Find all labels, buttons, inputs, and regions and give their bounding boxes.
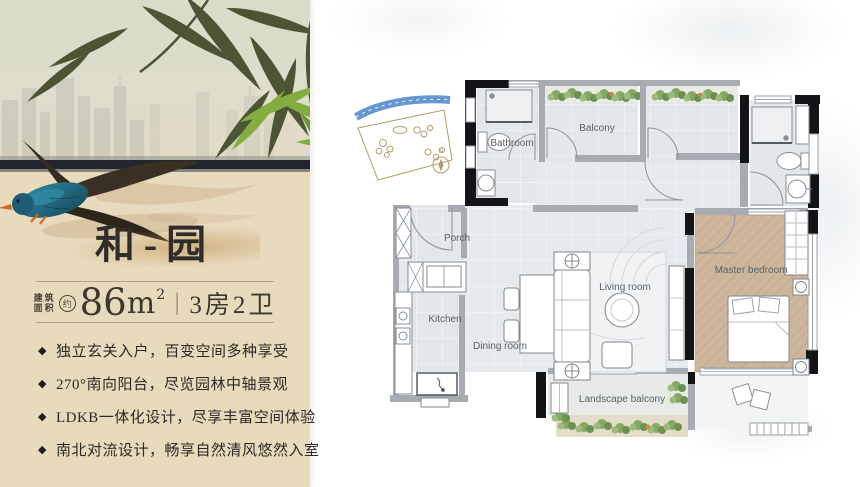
approx-badge: 约: [59, 295, 76, 312]
sink-icon: [788, 180, 806, 198]
room-label-landscape-balcony: Landscape balcony: [579, 394, 665, 405]
stove-icon: [396, 328, 410, 344]
cushion: [750, 389, 771, 410]
compass-label: N: [438, 148, 443, 155]
area-unit: m2: [127, 286, 165, 321]
area-label: 建筑 面积: [34, 293, 56, 313]
feature-item: ◆ 270°南向阳台，尽览园林中轴景观: [38, 367, 319, 400]
entry-closet: [396, 208, 411, 258]
sink-icon: [478, 175, 494, 191]
sofa: [554, 270, 590, 362]
floor-plan: N: [310, 0, 860, 487]
washer-icon: [417, 373, 457, 395]
feature-item: ◆ 独立玄关入户，百变空间多种享受: [38, 334, 319, 367]
utility-sill: [421, 398, 449, 407]
dining-chair: [504, 320, 519, 342]
feature-item: ◆ LDKB一体化设计，尽享丰富空间体验: [38, 400, 319, 433]
area-spec-row: 建筑 面积 约 86 m2 | 3房2卫: [0, 285, 310, 321]
room-label-porch: Porch: [444, 233, 470, 244]
dining-chair: [504, 288, 519, 310]
area-separator: |: [175, 289, 179, 317]
room-label-bathroom: Bathroom: [490, 138, 533, 149]
diamond-bullet-icon: ◆: [38, 377, 47, 390]
armchair: [602, 342, 632, 368]
toilet-icon: [777, 153, 801, 170]
toilet-tank: [801, 153, 809, 169]
coffee-table: [605, 293, 639, 327]
bath-cabinet: [796, 106, 809, 144]
site-location-sketch: N: [356, 99, 452, 180]
diamond-bullet-icon: ◆: [38, 410, 47, 423]
room-label-living-room: Living room: [599, 282, 651, 293]
feature-item: ◆ 南北对流设计，畅享自然清风悠然入室: [38, 433, 319, 466]
compass-icon: N: [433, 148, 449, 173]
feature-list: ◆ 独立玄关入户，百变空间多种享受 ◆ 270°南向阳台，尽览园林中轴景观 ◆ …: [38, 334, 319, 466]
stove-icon: [396, 308, 410, 324]
room-label-kitchen: Kitchen: [428, 314, 461, 325]
horizon-line: [0, 156, 310, 160]
diamond-bullet-icon: ◆: [38, 443, 47, 456]
area-value: 86: [80, 285, 127, 321]
divider-top: [36, 281, 274, 282]
title-block: 和-园: [0, 222, 310, 268]
page-title: 和-园: [0, 222, 310, 268]
site-trees: [376, 125, 444, 159]
feature-text: LDKB一体化设计，尽享丰富空间体验: [56, 406, 316, 427]
room-label-dining-room: Dining room: [473, 341, 527, 352]
layout-spec: 3房2卫: [189, 285, 276, 321]
plan-background: N: [310, 0, 860, 487]
scene-illustration: [0, 0, 310, 250]
info-panel: 和-园 建筑 面积 约 86 m2 | 3房2卫 ◆ 独立玄关入户，百变空间多种…: [0, 0, 310, 487]
pillow: [758, 297, 779, 313]
feature-text: 南北对流设计，畅享自然清风悠然入室: [56, 439, 320, 460]
feature-text: 270°南向阳台，尽览园林中轴景观: [56, 373, 288, 394]
feature-text: 独立玄关入户，百变空间多种享受: [56, 340, 289, 361]
divider-bottom: [36, 322, 274, 323]
pillow: [732, 298, 754, 315]
room-label-master-bedroom: Master bedroom: [715, 265, 788, 276]
diamond-bullet-icon: ◆: [38, 344, 47, 357]
promo-page: N: [0, 0, 860, 487]
toilet-tank: [478, 132, 487, 152]
room-label-balcony: Balcony: [579, 123, 615, 134]
site-plot-outline: [358, 110, 452, 180]
tv-cabinet: [669, 266, 684, 360]
